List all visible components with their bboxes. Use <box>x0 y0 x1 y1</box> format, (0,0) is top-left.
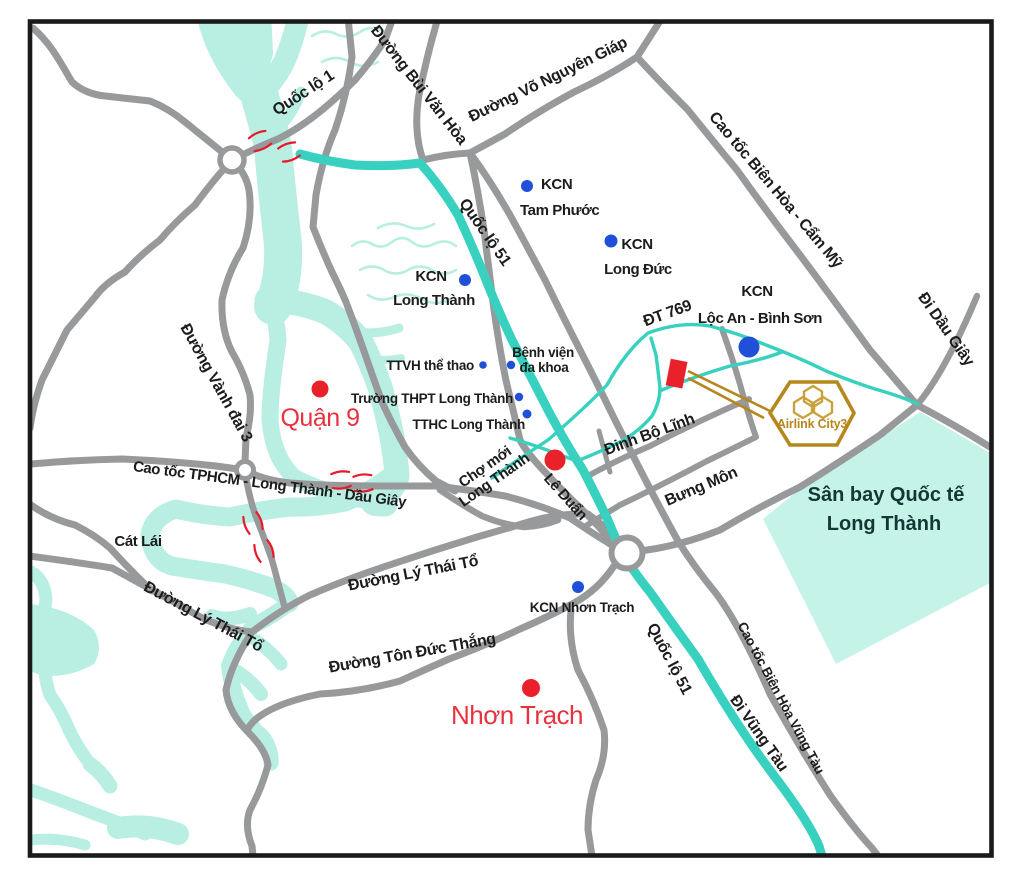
svg-text:KCN: KCN <box>415 268 446 285</box>
svg-text:KCN: KCN <box>541 176 572 193</box>
svg-text:đa khoa: đa khoa <box>520 360 570 375</box>
svg-text:Cát Lái: Cát Lái <box>114 533 161 550</box>
svg-text:KCN: KCN <box>621 236 652 253</box>
svg-text:Lộc An - Bình Sơn: Lộc An - Bình Sơn <box>698 310 822 327</box>
svg-text:Sân bay Quốc tế: Sân bay Quốc tế <box>808 484 966 506</box>
svg-text:Trường THPT Long Thành: Trường THPT Long Thành <box>351 391 513 406</box>
svg-text:Bệnh viện: Bệnh viện <box>512 345 574 360</box>
svg-text:Nhơn Trạch: Nhơn Trạch <box>451 700 583 730</box>
svg-text:KCN: KCN <box>741 283 772 300</box>
svg-text:Long Thành: Long Thành <box>827 513 941 535</box>
svg-text:Airlink City3: Airlink City3 <box>777 417 848 431</box>
svg-text:Tam Phước: Tam Phước <box>520 202 599 219</box>
svg-text:Quận 9: Quận 9 <box>280 404 359 432</box>
svg-text:Long Thành: Long Thành <box>393 292 475 309</box>
svg-text:KCN Nhơn Trạch: KCN Nhơn Trạch <box>530 600 634 615</box>
svg-text:Long Đức: Long Đức <box>604 261 672 278</box>
svg-text:TTHC Long Thành: TTHC Long Thành <box>413 417 526 432</box>
svg-text:TTVH thể thao: TTVH thể thao <box>386 358 474 373</box>
